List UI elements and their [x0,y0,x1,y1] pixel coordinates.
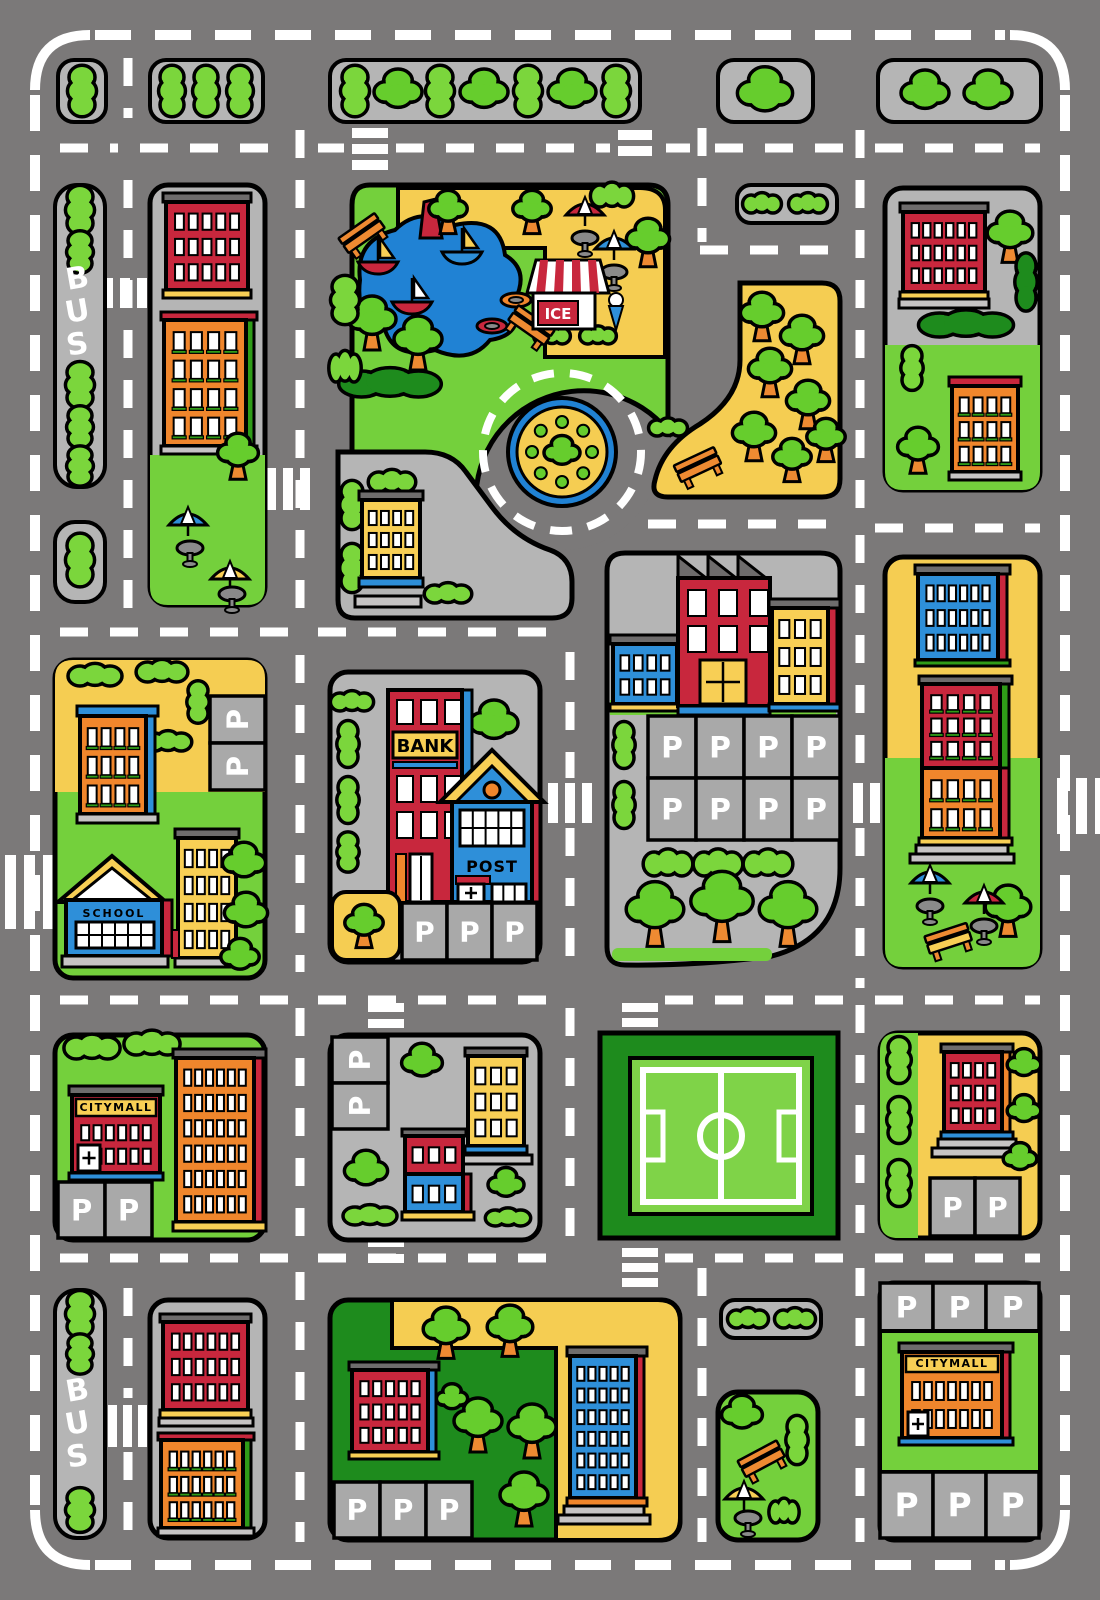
window-sill [946,733,959,736]
block-bush [424,583,472,603]
building-steps [910,854,1014,863]
window-sill [207,350,221,353]
window [811,620,821,638]
window [949,585,956,601]
median-bush [159,65,186,117]
parking-letter: P [439,1494,460,1527]
foliage [782,451,802,467]
window-sill [958,463,970,466]
foliage [70,1357,90,1372]
window [975,1108,983,1123]
shape [24,855,35,929]
citymall-west-building: CITYMALL [69,1086,163,1180]
post-label: POST [466,857,518,876]
median-bush [425,65,454,117]
foliage [405,332,431,353]
window [217,1196,224,1212]
median-bush [67,65,96,117]
window [588,1454,595,1468]
red-apartment [900,203,988,299]
window [974,447,983,463]
window [386,1428,394,1443]
foliage [344,95,366,115]
window [926,635,933,651]
window [577,1389,584,1403]
window [386,1405,394,1420]
window [193,1452,200,1468]
post-windows [460,810,524,846]
foliage [434,1322,459,1342]
window-sill [962,799,975,802]
window [948,809,958,828]
building-base [949,472,1021,480]
school-red-accent [172,930,179,958]
building-steps [355,596,421,607]
window [102,728,111,746]
building-sign-label: CITYMALL [79,1101,152,1114]
parking-letter: P [805,793,827,828]
foliage [789,1444,805,1463]
parking-letter: P [896,1291,918,1326]
window [209,931,217,948]
window-sill [189,407,203,410]
factory-office-yellow [769,599,840,711]
window [980,719,990,734]
shape [492,884,526,902]
window [184,1146,191,1162]
window [972,1382,980,1400]
window [647,655,656,670]
window [647,679,656,694]
foliage [70,469,90,484]
island-shrub [577,467,589,479]
window [445,1186,455,1203]
window [189,214,198,230]
yellow-apartment [359,491,423,587]
island-shrub [526,446,538,458]
foliage [791,329,814,347]
foliage [230,95,250,115]
bank-bush [337,720,359,767]
window [588,1367,595,1381]
window [987,422,996,438]
window [935,246,942,261]
window [189,239,198,255]
forest-parking: PPP [334,1482,472,1538]
bank-parking: PPP [402,903,537,960]
window [982,610,989,626]
window [948,695,958,710]
window [946,246,953,261]
factory-windows [688,590,768,616]
foliage [343,509,361,528]
window [912,223,919,238]
school-apartment-orange [77,706,158,823]
shape [1057,778,1068,834]
foliage [235,906,258,924]
foliage [673,854,691,874]
median-bush [227,65,254,117]
window [195,1120,202,1136]
bus-lane-label: BUS [62,259,92,363]
window [923,223,930,238]
window [634,655,643,670]
orange-apartment [158,1433,254,1536]
window [170,1502,177,1518]
window [975,1086,983,1101]
window-sill [168,1468,178,1471]
window [197,850,205,867]
foliage [167,664,186,680]
window [795,648,805,666]
foliage [230,951,250,967]
window [216,1502,223,1518]
school-windows [76,922,154,948]
window [946,223,953,238]
window [958,246,965,261]
island-shrub [535,425,547,437]
parking-letter: P [709,793,731,828]
window [220,1334,228,1350]
school-base [62,956,168,967]
window [951,1086,959,1101]
foliage [497,1180,516,1195]
window-sill [986,438,998,441]
window [719,590,737,616]
window-sill [214,1468,224,1471]
window-sill [930,757,943,760]
window [203,264,212,280]
foliage [97,1039,118,1057]
window [1001,447,1010,463]
window [964,719,974,734]
foliage [904,372,920,389]
island-shrub [556,476,568,488]
window [181,1452,188,1468]
citymall-east-parking-bottom: PPP [880,1472,1039,1538]
window [622,1410,629,1424]
window [588,1432,595,1446]
strip-bush [887,1159,912,1206]
foliage [69,564,91,585]
foliage [173,735,190,749]
window-sill [986,463,998,466]
window-sill [986,413,998,416]
building-steps [558,1515,650,1524]
window [963,1108,971,1123]
parking-letter: P [71,1193,92,1227]
window [181,1502,188,1518]
window [185,850,193,867]
window [405,555,413,569]
parking-letter: P [459,915,479,948]
midtown-hedge [343,1205,397,1225]
foliage [616,187,631,205]
parking-letter: P [393,1494,414,1527]
building-base [769,704,840,711]
median-bush [743,193,782,213]
table-foot [923,919,937,925]
foliage [1016,1060,1033,1073]
pocket-park-bush [786,1415,808,1464]
window-sill [946,828,959,831]
foliage [356,695,371,709]
window [228,1095,235,1111]
strip-bush [887,1036,912,1083]
shape [5,855,16,929]
window [196,1384,204,1400]
park-bush [330,275,359,324]
window [360,1405,368,1420]
orange-apartment [919,768,1012,845]
window [811,676,821,694]
residential-lawn [150,455,265,605]
window [599,1454,606,1468]
window-sill [214,1493,224,1496]
tall-orange-tower [173,1049,266,1231]
red-apartment [163,193,251,298]
foliage [890,1124,908,1142]
window [217,1146,224,1162]
window [393,533,401,547]
window [964,780,974,799]
window [634,679,643,694]
foliage [453,587,470,601]
window [987,397,996,413]
window [936,1410,944,1428]
foliage [100,668,120,684]
window-sill [180,1518,190,1521]
window [225,361,236,379]
window [88,785,97,803]
window [795,676,805,694]
window [621,655,630,670]
shape [548,783,558,823]
window [208,1334,216,1350]
window [980,695,990,710]
window [475,1094,485,1111]
parking-letter: P [347,1494,368,1527]
blue-apartment [915,565,1010,666]
window-sill [114,747,126,750]
window [102,785,111,803]
median-bush [789,193,828,213]
foliage [465,1414,491,1435]
window-sill [172,350,186,353]
window [102,757,111,775]
window [951,1108,959,1123]
parking-letter: P [1002,1291,1024,1326]
window [445,1147,455,1162]
bus-lane-bush [65,533,94,587]
window [216,214,225,230]
window [936,1382,944,1400]
island-shrub [577,425,589,437]
window [195,1070,202,1086]
shape [870,783,880,823]
window-sill [207,436,221,439]
shape [352,160,388,170]
city-playmat: ICEBUSBUSPPPPPPPPBANKPOSTPPPPPSCHOOLCITY… [0,0,1100,1600]
foliage [759,362,782,380]
foliage [731,1409,753,1426]
building-base [465,1146,527,1153]
shape [1095,778,1100,834]
foliage [385,85,411,106]
window [170,1452,177,1468]
foliage [975,86,1001,107]
window [948,719,958,734]
building-base [899,1438,1013,1445]
shape [565,783,575,823]
window [230,239,239,255]
foliage [751,306,774,324]
parking-letter: P [805,731,827,766]
window [174,332,185,350]
window [964,695,974,710]
window-sill [979,799,992,802]
factory-parking: PPPPPPPP [648,716,840,840]
midtown-duplex-top [402,1129,466,1174]
window [204,1502,211,1518]
window [208,332,219,350]
window [239,1171,246,1187]
window [611,1432,618,1446]
window-sill [972,463,984,466]
island-shrub [586,446,598,458]
window [360,1381,368,1396]
foliage [812,197,825,211]
window-sill [100,747,112,750]
window [239,1095,246,1111]
window [193,1502,200,1518]
window [373,1381,381,1396]
citymall-east-parking-top: PPP [880,1283,1039,1331]
window [1001,422,1010,438]
window [208,1359,216,1375]
midtown-duplex-bottom [402,1174,474,1220]
window [622,1389,629,1403]
window [208,1384,216,1400]
window [507,1068,517,1085]
window [969,223,976,238]
playmat-canvas: ICEBUSBUSPPPPPPPPBANKPOSTPPPPPSCHOOLCITY… [0,0,1100,1600]
window [184,1359,192,1375]
window [972,1410,980,1428]
window [599,1389,606,1403]
window [958,268,965,283]
window [220,1384,228,1400]
window [239,1070,246,1086]
school-bush [187,681,209,724]
window [987,447,996,463]
window [938,610,945,626]
foliage [890,1187,908,1205]
window [203,214,212,230]
window [118,1125,126,1140]
foliage [354,917,374,933]
school-parking: PP [210,696,265,790]
shape [622,1278,658,1287]
window-sill [1000,463,1012,466]
orange-apartment [949,377,1021,480]
factory-bush [613,781,635,828]
window [197,877,205,894]
shape [283,468,293,510]
window [475,1068,485,1085]
window-sill [962,710,975,713]
bank-bush [337,776,359,823]
window [203,239,212,255]
window [209,877,217,894]
window-sill [979,828,992,831]
window-sill [203,1468,213,1471]
window [143,1125,151,1140]
parking-letter: P [947,1486,971,1525]
median-bush [193,65,220,117]
foliage [602,330,614,342]
shape [368,1003,404,1012]
window [228,1171,235,1187]
window [413,1186,423,1203]
window [185,931,193,948]
foliage [340,804,356,822]
window [611,1475,618,1489]
factory-hedge [743,849,793,876]
window [191,361,202,379]
parking-letter: P [757,731,779,766]
window [599,1410,606,1424]
window [216,1477,223,1493]
shape [853,783,863,823]
bank-band [393,762,457,768]
crosswalk [266,468,310,510]
window [381,511,389,525]
foliage [743,426,766,444]
window [230,264,239,280]
window [174,389,185,407]
window [960,1382,968,1400]
table-foot [183,561,197,567]
foliage [519,1420,545,1441]
window [174,361,185,379]
window [196,1334,204,1350]
window [599,1475,606,1489]
factory-office-blue [610,635,680,711]
window [421,812,437,838]
window [923,268,930,283]
window [204,1452,211,1468]
shape [582,783,592,823]
table-foot [741,1531,755,1537]
window [779,676,789,694]
window-sill [172,379,186,382]
window-sill [224,350,238,353]
foliage [375,1209,395,1223]
bus-lane-bush [65,1488,94,1533]
window [980,780,990,799]
window [963,1086,971,1101]
window [227,1452,234,1468]
shape [622,1003,658,1012]
school-label: SCHOOL [83,907,146,920]
window [216,264,225,280]
median-bush [513,65,542,117]
median-bush [601,65,630,117]
window [228,1146,235,1162]
window [963,1063,971,1078]
window [971,635,978,651]
